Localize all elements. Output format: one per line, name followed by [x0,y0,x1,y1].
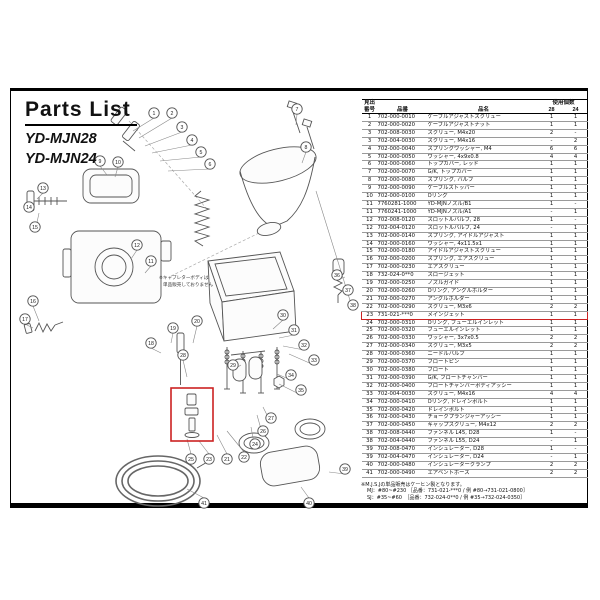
cell-q24: 1 [564,311,588,319]
page-title: Parts List [25,98,137,126]
cell-name: ワッシャー, 4x9x0.8 [428,153,540,161]
balloon-38: 38 [348,300,358,310]
cell-name: スクリュー, M3x6 [428,303,540,311]
cell-q24: 1 [564,121,588,129]
cell-no: 40 [362,461,378,469]
cell-q28: 1 [540,272,564,280]
cell-q24: 1 [564,114,588,122]
cell-pn: 702-008-0120 [378,216,428,224]
cell-pn: 702-000-0250 [378,280,428,288]
table-row: 21702-000-0270アングルホルダー11 [362,295,588,303]
cell-q28: - [540,224,564,232]
cell-pn: 7760281-1000 [378,200,428,208]
cell-q28: 1 [540,114,564,122]
cell-q28: 2 [540,129,564,137]
cell-no: 26 [362,335,378,343]
cell-name: ニードルバルブ [428,351,540,359]
cell-pn: 702-000-0260 [378,287,428,295]
cell-no: 3 [362,129,378,137]
cell-no: 23 [362,311,378,319]
cell-q24: 1 [564,248,588,256]
cell-name: ケーブルアジャストナット [428,121,540,129]
cell-name: スプリング, バルブ [428,177,540,185]
balloon-18: 18 [146,338,156,348]
cell-q24: 2 [564,335,588,343]
table-row: 2702-000-0020ケーブルアジャストナット11 [362,121,588,129]
cell-q28: 1 [540,240,564,248]
table-row: 17702-000-0230エアスクリュー11 [362,264,588,272]
table-row: 10702-000-0100Oリング11 [362,193,588,201]
cell-q24: 2 [564,422,588,430]
svg-text:26: 26 [260,429,266,435]
cell-q28: 1 [540,232,564,240]
cell-pn: 731-021-***0 [378,311,428,319]
svg-text:7: 7 [296,107,299,113]
svg-text:2: 2 [171,111,174,117]
table-row: 12702-004-0120スロットルバルブ, 24-1 [362,224,588,232]
balloon-41: 41 [199,498,209,508]
title-block: Parts List YD-MJN28 YD-MJN24 [25,98,137,168]
table-row: 39702-004-0470インシュレーター, D24-1 [362,453,588,461]
svg-text:11: 11 [148,259,153,265]
header-item-no: 見出 番号 [362,100,378,114]
cell-q28: 1 [540,177,564,185]
header-part-name: 品名 [428,100,540,114]
cell-q28: 1 [540,382,564,390]
svg-text:4: 4 [191,138,194,144]
balloon-17: 17 [20,314,30,324]
table-row: 14702-000-0160ワッシャー, 4x11.5x111 [362,240,588,248]
cell-no: 18 [362,272,378,280]
cell-pn: 702-000-0310 [378,319,428,327]
cell-q24: 1 [564,161,588,169]
cell-q24: 1 [564,264,588,272]
table-row: 23731-021-***0メインジェット11 [362,311,588,319]
svg-text:5: 5 [200,150,203,156]
cell-pn: 702-000-0090 [378,185,428,193]
cell-q24: 1 [564,232,588,240]
balloon-7: 7 [292,104,302,114]
balloon-26: 26 [258,426,268,436]
cell-q28: 1 [540,264,564,272]
model-list: YD-MJN28 YD-MJN24 [25,130,137,168]
cell-pn: 702-000-0370 [378,359,428,367]
footnote: ※M.J.S.Jの単品販売はケーヒン製となります。 MJ：#80~#230 ［品… [361,482,587,501]
cell-q28: 1 [540,121,564,129]
cell-q24: 1 [564,453,588,461]
cell-no: 11 [362,200,378,208]
cell-name: Oリング, ドレインボルト [428,398,540,406]
table-row: 5702-000-0050ワッシャー, 4x9x0.844 [362,153,588,161]
svg-text:6: 6 [209,162,212,168]
cell-q24: 4 [564,153,588,161]
balloon-4: 4 [187,135,197,145]
cell-q28: 1 [540,169,564,177]
cell-pn: 702-004-0030 [378,390,428,398]
table-row: 35702-000-0420ドレインボルト11 [362,406,588,414]
cell-no: 3 [362,137,378,145]
cell-q24: - [564,200,588,208]
cell-name: チョークプランジャーアッシー [428,414,540,422]
cell-q28: 4 [540,390,564,398]
cell-pn: 702-000-0400 [378,382,428,390]
cell-q28: 1 [540,311,564,319]
cell-q28: - [540,208,564,216]
cell-q24: 1 [564,287,588,295]
table-row: 32702-000-0400フロートチャンバーボディアッシー11 [362,382,588,390]
cell-no: 39 [362,446,378,454]
cell-q24: - [564,446,588,454]
cell-pn: 702-000-0160 [378,240,428,248]
cell-q28: 1 [540,193,564,201]
table-row: 13702-000-0140スプリング, アイドルアジャスト11 [362,232,588,240]
cell-name: Oリング [428,193,540,201]
cell-q28: 1 [540,374,564,382]
cell-q24: 1 [564,224,588,232]
svg-text:21: 21 [224,457,230,463]
balloon-36: 36 [332,270,342,280]
cell-no: 38 [362,430,378,438]
cell-q24: 1 [564,169,588,177]
cell-q24: 1 [564,208,588,216]
cell-pn: 702-004-0030 [378,137,428,145]
cell-no: 12 [362,216,378,224]
balloon-16: 16 [28,296,38,306]
svg-text:16: 16 [30,299,36,305]
cell-q28: 2 [540,303,564,311]
cell-name: Oリング, フューエルインレット [428,319,540,327]
cell-pn: 702-000-0230 [378,264,428,272]
cell-pn: 702-000-0380 [378,367,428,375]
balloon-8: 8 [301,142,311,152]
balloon-32: 32 [299,340,309,350]
cell-q24: 1 [564,438,588,446]
cell-pn: 702-008-0440 [378,430,428,438]
balloon-15: 15 [30,222,40,232]
cell-pn: 702-000-0360 [378,351,428,359]
table-row: 12702-008-0120スロットルバルブ, 281- [362,216,588,224]
cell-pn: 702-000-0040 [378,145,428,153]
cell-pn: 702-000-0070 [378,169,428,177]
table-row: 7702-000-0070G/K, トップカバー11 [362,169,588,177]
cell-no: 9 [362,185,378,193]
cell-no: 38 [362,438,378,446]
cell-no: 1 [362,114,378,122]
balloon-14: 14 [24,202,34,212]
balloon-2: 2 [167,108,177,118]
svg-text:37: 37 [345,288,351,294]
cell-q24: 2 [564,461,588,469]
cell-pn: 702-000-0060 [378,161,428,169]
cell-q24: 1 [564,256,588,264]
cell-q24: - [564,129,588,137]
cell-no: 37 [362,422,378,430]
cell-no: 31 [362,374,378,382]
cell-q28: - [540,453,564,461]
cell-name: エアベントホース [428,469,540,477]
cell-q28: 2 [540,335,564,343]
balloon-34: 34 [286,370,296,380]
cell-name: スロージェット [428,272,540,280]
balloon-1: 1 [149,108,159,118]
cell-name: トップカバー, レッド [428,161,540,169]
cell-pn: 702-000-0290 [378,303,428,311]
balloon-28: 28 [178,350,188,360]
cell-no: 17 [362,264,378,272]
cell-name: YD-MJNノズル/A1 [428,208,540,216]
cell-q28: 2 [540,469,564,477]
svg-text:14: 14 [26,205,32,211]
table-row: 15702-000-0180アイドルアジャストスクリュー11 [362,248,588,256]
cell-pn: 702-000-0200 [378,256,428,264]
cell-no: 39 [362,453,378,461]
table-row: 30702-000-0380フロート11 [362,367,588,375]
table-row: 8702-000-0080スプリング, バルブ11 [362,177,588,185]
cell-q24: 1 [564,382,588,390]
cell-pn: 702-000-0340 [378,343,428,351]
cell-pn: 702-004-0440 [378,438,428,446]
diagram-note-line1: ※キャブレターボディは [159,274,209,281]
cell-q28: 4 [540,153,564,161]
svg-text:36: 36 [334,273,340,279]
svg-text:12: 12 [134,243,140,249]
cell-q24: 1 [564,398,588,406]
cell-no: 8 [362,177,378,185]
table-row: 3702-004-0030スクリュー, M4x16-2 [362,137,588,145]
table-row: 39702-008-0470インシュレーター, D281- [362,446,588,454]
cell-pn: 702-000-0320 [378,327,428,335]
cell-name: キャップスクリュー, M4x12 [428,422,540,430]
svg-text:22: 22 [241,455,247,461]
balloon-33: 33 [309,355,319,365]
cell-pn: 702-000-0050 [378,153,428,161]
cell-q24: 1 [564,414,588,422]
header-qty-28: 28 [540,107,564,114]
cell-pn: 702-008-0470 [378,446,428,454]
cell-q28: 1 [540,319,564,327]
balloon-22: 22 [239,452,249,462]
table-row: 41702-000-0490エアベントホース22 [362,469,588,477]
cell-name: スクリュー, M3x5 [428,343,540,351]
table-row: 26702-000-0330ワッシャー, 3x7x0.522 [362,335,588,343]
svg-text:17: 17 [22,317,28,323]
cell-no: 28 [362,351,378,359]
cell-no: 12 [362,224,378,232]
cell-pn: 702-000-0420 [378,406,428,414]
model-name-1: YD-MJN28 [25,130,137,148]
svg-text:8: 8 [305,145,308,151]
cell-q24: - [564,430,588,438]
svg-text:32: 32 [301,343,307,349]
cell-no: 30 [362,367,378,375]
cell-pn: 702-000-0450 [378,422,428,430]
cell-q28: 1 [540,359,564,367]
svg-text:19: 19 [170,326,176,332]
table-row: 33702-004-0030スクリュー, M4x1644 [362,390,588,398]
cell-q28: 1 [540,367,564,375]
cell-no: 7 [362,169,378,177]
table-row: 37702-000-0450キャップスクリュー, M4x1222 [362,422,588,430]
diagram-note-line2: 単品販売しておりません [163,281,214,288]
cell-q28: 1 [540,287,564,295]
cell-no: 24 [362,319,378,327]
cell-name: エアスクリュー [428,264,540,272]
table-row: 4702-000-0040スプリングワッシャー, M466 [362,145,588,153]
cell-name: YD-MJNノズル/B1 [428,200,540,208]
cell-name: アイドルアジャストスクリュー [428,248,540,256]
table-row: 18732-024-0**0スロージェット11 [362,272,588,280]
table-row: 16702-000-0200スプリング, エアスクリュー11 [362,256,588,264]
table-row: 25702-000-0320フューエルインレット11 [362,327,588,335]
cell-pn: 702-004-0120 [378,224,428,232]
cell-no: 4 [362,145,378,153]
cell-pn: 702-000-0140 [378,232,428,240]
table-row: 36702-000-0430チョークプランジャーアッシー11 [362,414,588,422]
balloon-23: 23 [204,454,214,464]
table-row: 1702-000-0010ケーブルアジャストスクリュー11 [362,114,588,122]
svg-text:33: 33 [311,358,317,364]
cell-no: 2 [362,121,378,129]
cell-pn: 702-008-0030 [378,129,428,137]
cell-no: 19 [362,280,378,288]
cell-no: 11 [362,208,378,216]
cell-no: 20 [362,287,378,295]
svg-text:30: 30 [280,313,286,319]
cell-name: フロート [428,367,540,375]
cell-q28: 1 [540,351,564,359]
svg-text:1: 1 [153,111,156,117]
cell-name: スクリュー, M4x16 [428,137,540,145]
cell-q28: 1 [540,280,564,288]
cell-q24: 1 [564,185,588,193]
cell-name: ケーブルアジャストスクリュー [428,114,540,122]
cell-pn: 702-000-0080 [378,177,428,185]
cell-name: スロットルバルブ, 24 [428,224,540,232]
cell-q28: 1 [540,200,564,208]
cell-q28: 1 [540,327,564,335]
cell-pn: 702-000-0020 [378,121,428,129]
svg-text:3: 3 [181,125,184,131]
cell-no: 13 [362,232,378,240]
cell-pn: 702-000-0490 [378,469,428,477]
table-row: 24702-000-0310Oリング, フューエルインレット11 [362,319,588,327]
cell-q28: 6 [540,145,564,153]
cell-no: 5 [362,153,378,161]
table-header: 見出 番号 品番 品名 使用個数 28 24 [362,100,588,114]
cell-q28: 2 [540,422,564,430]
cell-no: 41 [362,469,378,477]
svg-text:31: 31 [291,328,297,334]
svg-text:20: 20 [194,319,200,325]
cell-no: 21 [362,295,378,303]
cell-q24: 1 [564,177,588,185]
svg-text:24: 24 [252,442,258,448]
svg-text:27: 27 [268,416,274,422]
cell-q28: 1 [540,248,564,256]
cell-no: 22 [362,303,378,311]
balloon-3: 3 [177,122,187,132]
cell-name: ワッシャー, 4x11.5x1 [428,240,540,248]
cell-name: フロートチャンバーボディアッシー [428,382,540,390]
cell-q24: 1 [564,351,588,359]
cell-q24: 1 [564,367,588,375]
balloon-13: 13 [38,183,48,193]
cell-q28: 1 [540,398,564,406]
cell-no: 33 [362,390,378,398]
svg-text:40: 40 [306,501,312,507]
cell-pn: 702-000-0430 [378,414,428,422]
cell-name: スクリュー, M4x20 [428,129,540,137]
table-row: 6702-000-0060トップカバー, レッド11 [362,161,588,169]
balloon-24: 24 [250,439,260,449]
cell-q24: 1 [564,193,588,201]
cell-no: 15 [362,248,378,256]
cell-no: 36 [362,414,378,422]
cell-name: スプリング, アイドルアジャスト [428,232,540,240]
balloon-21: 21 [222,454,232,464]
cell-pn: 702-000-0010 [378,114,428,122]
cell-no: 27 [362,343,378,351]
cell-no: 29 [362,359,378,367]
cell-pn: 702-004-0470 [378,453,428,461]
cell-q28: 1 [540,446,564,454]
table-row: 22702-000-0290スクリュー, M3x622 [362,303,588,311]
cell-no: 35 [362,406,378,414]
cell-q24: 1 [564,327,588,335]
cell-q28: 2 [540,343,564,351]
svg-text:13: 13 [40,186,46,192]
svg-text:29: 29 [230,363,236,369]
svg-text:23: 23 [206,457,212,463]
table-row: 40702-000-0480インシュレータークランプ22 [362,461,588,469]
cell-name: フロートピン [428,359,540,367]
balloon-37: 37 [343,285,353,295]
svg-text:38: 38 [350,303,356,309]
cell-q24: 6 [564,145,588,153]
cell-name: インシュレータークランプ [428,461,540,469]
cell-q24: 1 [564,272,588,280]
table-row: 38702-004-0440ファンネル L55, D24-1 [362,438,588,446]
cell-pn: 7760241-1000 [378,208,428,216]
cell-pn: 702-000-0480 [378,461,428,469]
cell-q24: 2 [564,343,588,351]
parts-sheet: Parts List YD-MJN28 YD-MJN24 [10,88,588,508]
balloon-12: 12 [132,240,142,250]
table-row: 9702-000-0090ケーブルストッパー11 [362,185,588,193]
cell-no: 32 [362,382,378,390]
cell-q24: 1 [564,406,588,414]
cell-name: Oリング, アングルホルダー [428,287,540,295]
table-row: 28702-000-0360ニードルバルブ11 [362,351,588,359]
balloon-39: 39 [340,464,350,474]
cell-q28: 1 [540,406,564,414]
balloon-19: 19 [168,323,178,333]
balloon-30: 30 [278,310,288,320]
table-row: 27702-000-0340スクリュー, M3x522 [362,343,588,351]
cell-q24: 1 [564,359,588,367]
svg-text:34: 34 [288,373,294,379]
parts-table-region: 見出 番号 品番 品名 使用個数 28 24 1702-000-0010ケーブル… [361,99,587,501]
cell-no: 10 [362,193,378,201]
svg-text:28: 28 [180,353,186,359]
header-qty-24: 24 [564,107,588,114]
balloon-11: 11 [146,256,156,266]
cell-no: 34 [362,398,378,406]
cell-no: 25 [362,327,378,335]
cell-name: スロットルバルブ, 28 [428,216,540,224]
balloon-31: 31 [289,325,299,335]
cell-q28: 2 [540,461,564,469]
